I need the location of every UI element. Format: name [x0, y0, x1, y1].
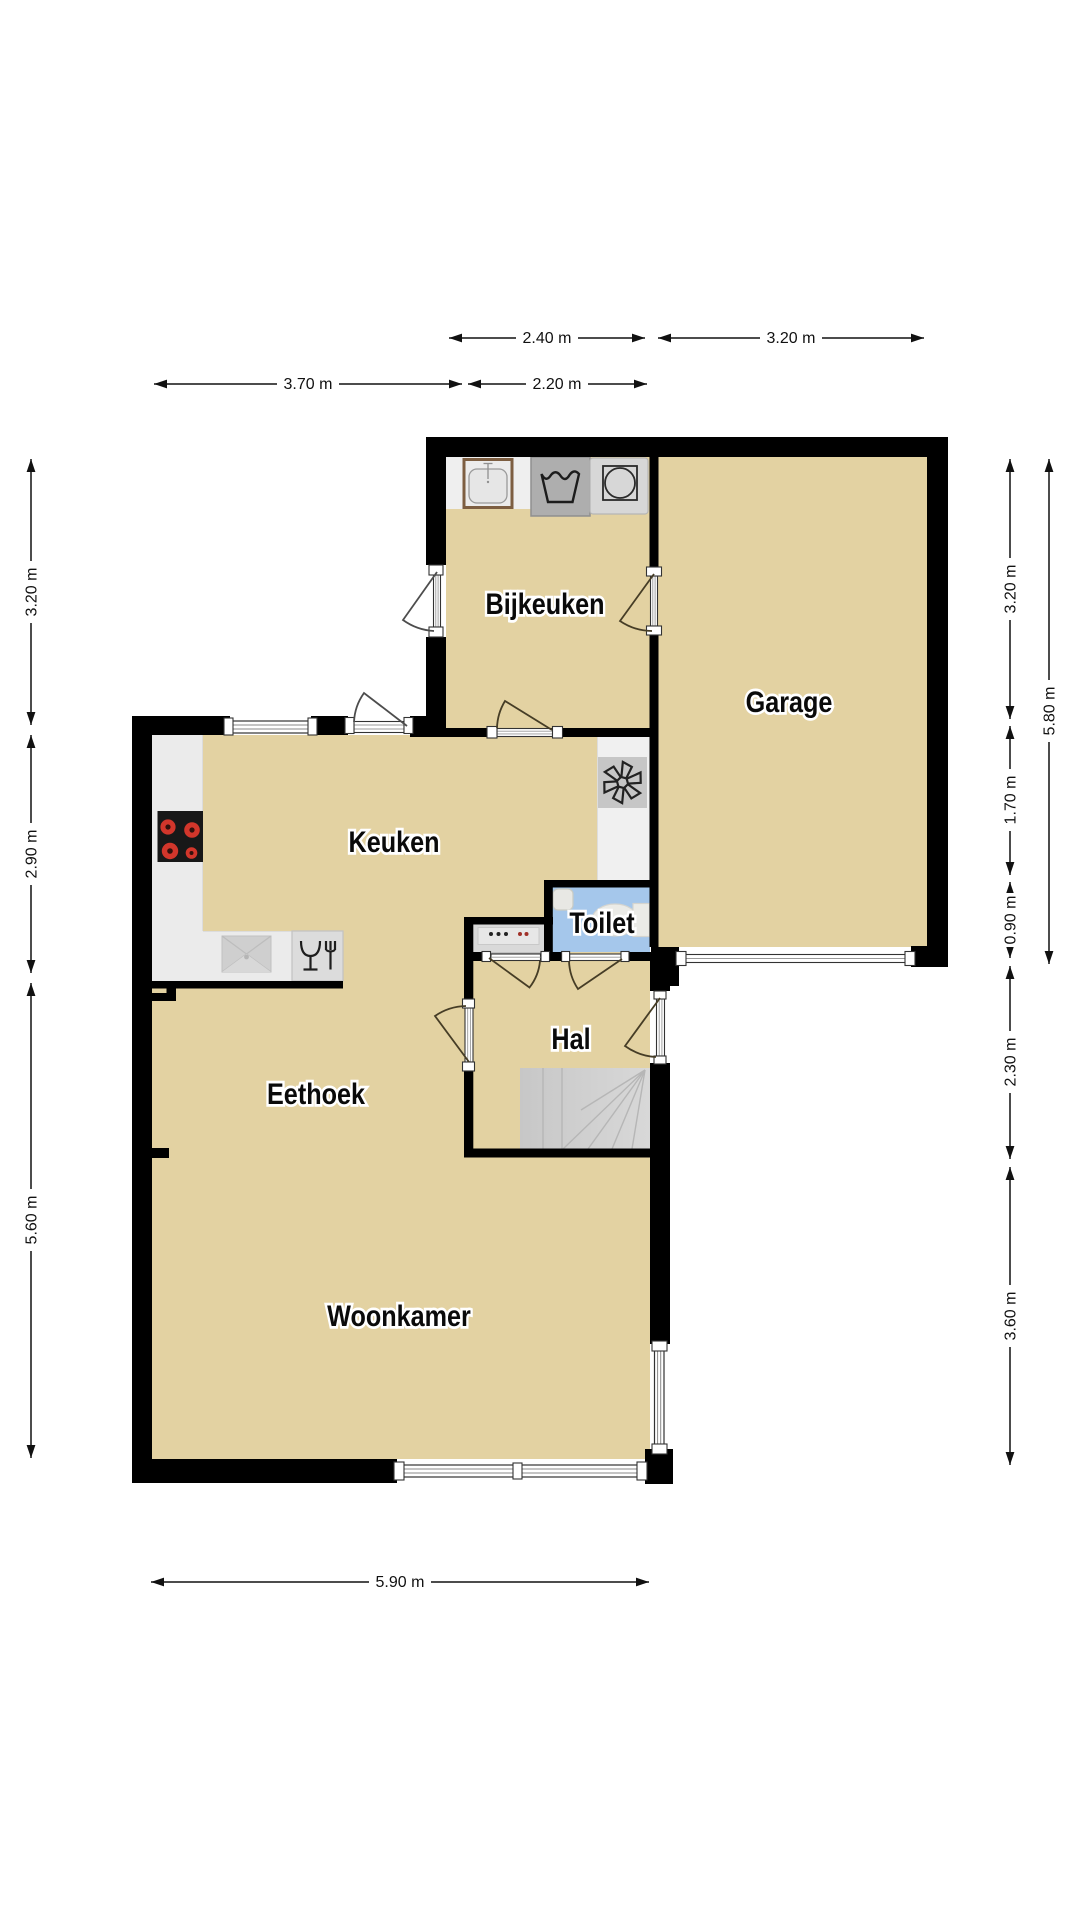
- svg-text:5.90 m: 5.90 m: [376, 1574, 425, 1591]
- svg-text:2.30 m: 2.30 m: [1003, 1038, 1020, 1087]
- svg-text:Eethoek: Eethoek: [267, 1077, 366, 1111]
- svg-text:3.20 m: 3.20 m: [767, 330, 816, 347]
- svg-text:3.60 m: 3.60 m: [1003, 1292, 1020, 1341]
- svg-text:5.60 m: 5.60 m: [24, 1196, 41, 1245]
- svg-text:0.90 m: 0.90 m: [1003, 896, 1020, 945]
- svg-text:Woonkamer: Woonkamer: [327, 1299, 471, 1333]
- svg-text:1.70 m: 1.70 m: [1003, 776, 1020, 825]
- svg-text:5.80 m: 5.80 m: [1042, 687, 1059, 736]
- svg-text:Keuken: Keuken: [349, 825, 440, 859]
- svg-text:3.70 m: 3.70 m: [284, 376, 333, 393]
- svg-text:2.20 m: 2.20 m: [533, 376, 582, 393]
- svg-text:3.20 m: 3.20 m: [1003, 565, 1020, 614]
- svg-text:Hal: Hal: [551, 1022, 590, 1056]
- svg-text:Garage: Garage: [746, 685, 833, 719]
- svg-text:2.40 m: 2.40 m: [523, 330, 572, 347]
- svg-text:2.90 m: 2.90 m: [24, 830, 41, 879]
- svg-text:Bijkeuken: Bijkeuken: [486, 587, 605, 621]
- svg-text:Toilet: Toilet: [569, 906, 634, 940]
- svg-text:3.20 m: 3.20 m: [24, 568, 41, 617]
